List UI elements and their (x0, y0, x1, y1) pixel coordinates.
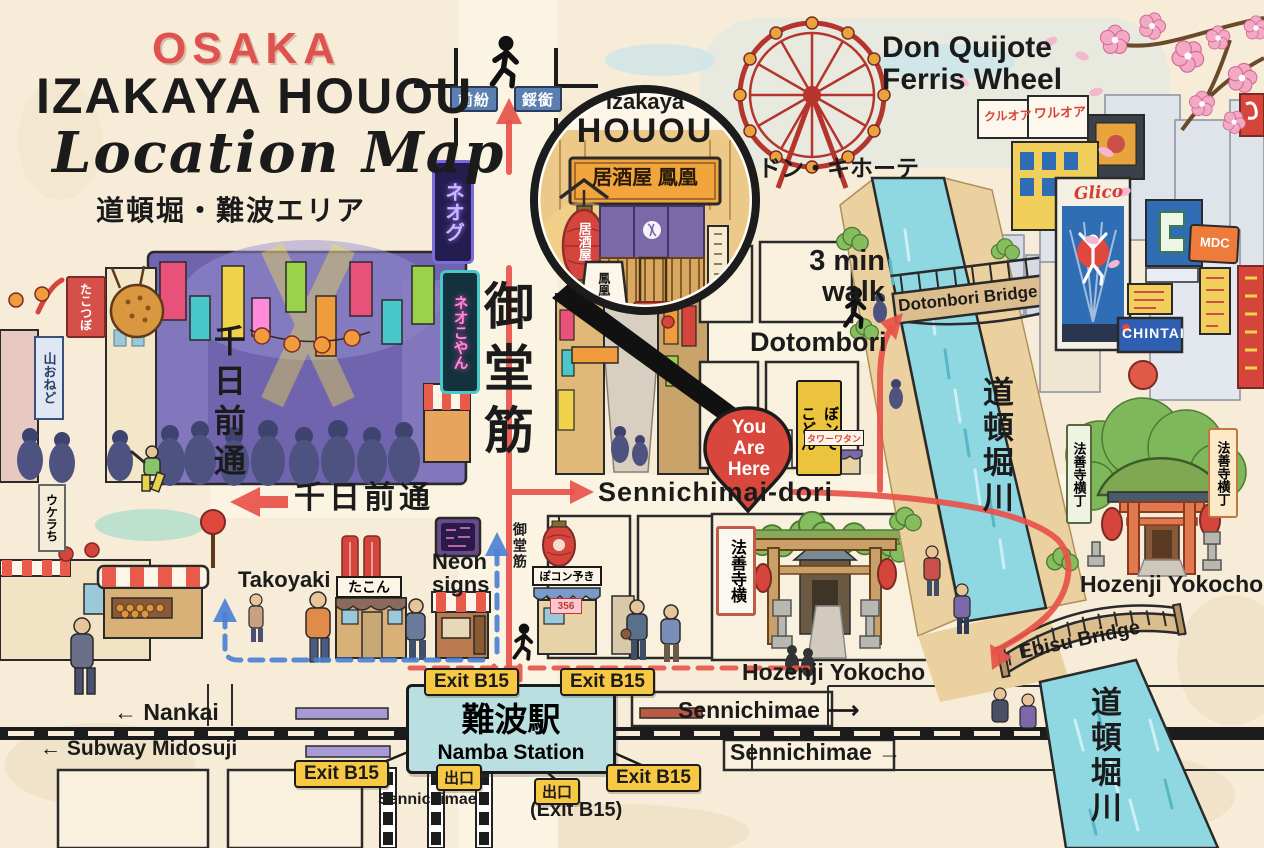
pedestrian-child (249, 594, 263, 642)
lower-left-sign: ウケラち (38, 484, 66, 552)
exit-b15-badge-bottom-right: Exit B15 (606, 764, 701, 792)
sennichi-horizontal-label: 千日前通 (294, 482, 434, 515)
dotombori-label: Dotombori (750, 328, 886, 357)
blue-vertical-sign: 山おねど (34, 336, 64, 420)
osaka-location-map: OSAKA IZAKAYA HOUOU Location Map 道頓堀・難波エ… (0, 0, 1264, 848)
title-script: Location Map (52, 124, 505, 183)
mdc-label: MDC (1200, 235, 1230, 250)
hozenji-sign-right-b: 法善寺横丁 (1208, 428, 1238, 518)
tako-tsubo-sign: たこつぼ (66, 276, 106, 338)
glico-label: Glico (1074, 183, 1124, 204)
exit-b15-badge-top-left: Exit B15 (424, 668, 519, 696)
night-street-scene (148, 240, 470, 486)
hozenji-sign-center: 法善寺横 (716, 526, 756, 616)
title-city: OSAKA (152, 26, 341, 73)
sennichimae-lower-label: Sennichimae → (730, 740, 901, 764)
pedestrian-gray (406, 599, 426, 660)
title-area: 道頓堀・難波エリア (96, 196, 366, 226)
sennichimai-dori-label: Sennichimai-dori (598, 478, 833, 507)
sennichi-vertical-label: 千日前通 (210, 324, 244, 484)
three-min-walk-label: 3 min walk (770, 246, 885, 307)
inset-lantern-text: 居酒屋 (577, 222, 591, 261)
title-name: IZAKAYA HOUOU (36, 70, 473, 123)
takoyaki-label: Takoyaki (238, 568, 331, 591)
neon-sign-pink: ネオこやん (440, 270, 480, 394)
hozenji-right-label: Hozenji Yokocho (1080, 572, 1263, 596)
deguchi-badge-right: 出口 (534, 778, 580, 805)
inset-signboard-text: 居酒屋 鳳凰 (572, 168, 718, 189)
guide-sign-right: 鋖銜 (514, 86, 562, 112)
small-red-sign: タワーワタン (804, 430, 864, 446)
river-upper-label: 道頓堀川 (978, 376, 1011, 516)
namba-station: 難波駅 Namba Station (406, 684, 616, 774)
you-are-here-label: You Are Here (710, 418, 788, 481)
midosuji-label: 御堂筋 (478, 280, 531, 466)
billboard-kana-a: クルオア (984, 109, 1032, 123)
exit-b15-badge-bottom-left: Exit B15 (294, 760, 389, 788)
nankai-label: ← Nankai (114, 700, 219, 724)
hozenji-center-label: Hozenji Yokocho (742, 660, 925, 684)
hozenji-sign-right-a: 法善寺横丁 (1066, 424, 1092, 524)
ponko-sign: ぽコン予き (532, 566, 602, 586)
sennichimae-upper-label: Sennichimae ⟶ (678, 698, 859, 722)
river-lower-label: 道頓堀川 (1086, 686, 1119, 826)
midosuji-small-label: 御堂筋 (512, 522, 527, 570)
sennichimae-small-label: Sennichimae (378, 792, 477, 809)
neon-signs-label: Neon signs (432, 550, 489, 597)
yellow-kanji-sign: ぼンて こどん (796, 380, 842, 476)
takon-sign: たこん (336, 576, 402, 598)
inset-board-text: 鳳凰 (597, 272, 610, 296)
striped-awning-shop (424, 384, 470, 462)
price-sign: 356 (550, 598, 582, 614)
billboard-kana-b: ワルオア (1034, 105, 1086, 121)
chintai-label: CHINTAI (1122, 326, 1180, 341)
ferris-wheel-label: Don Quijote Ferris Wheel (882, 32, 1062, 96)
pedestrian-orange (306, 592, 330, 662)
don-quijote-label: ドン・キホーテ (758, 156, 919, 180)
inset-title: Izakaya HOUOU (560, 90, 730, 149)
subway-midosuji-label: ← Subway Midosuji (40, 738, 237, 760)
exit-b15-badge-top-right: Exit B15 (560, 668, 655, 696)
deguchi-badge-left: 出口 (436, 764, 482, 791)
